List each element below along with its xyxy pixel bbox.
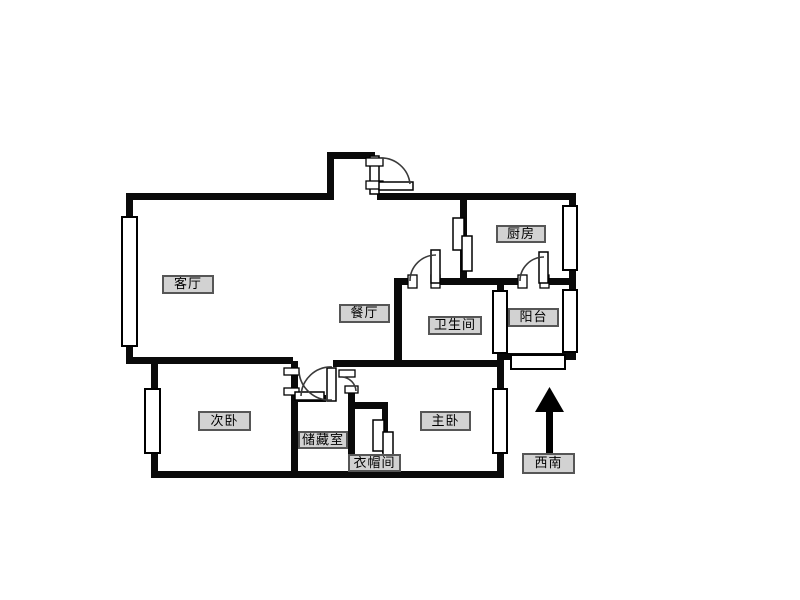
room-label-living-room: 客厅 xyxy=(162,275,214,294)
window-masterbedroom-right xyxy=(493,389,507,453)
entrance-door-hinge-top xyxy=(366,158,383,166)
wall-bottom-exterior xyxy=(151,471,504,478)
compass-direction-label: 西南 xyxy=(522,453,575,474)
kitchen-door-jamb-left xyxy=(518,275,527,288)
room-label-storage-room: 储藏室 xyxy=(298,431,348,449)
compass-arrow-head xyxy=(535,387,564,412)
room-label-cloakroom: 衣帽间 xyxy=(348,454,401,472)
window-balcony-bottom xyxy=(511,355,565,369)
wall-storage-left xyxy=(291,361,298,473)
window-balcony-left xyxy=(493,291,507,353)
window-secondbedroom-left xyxy=(145,389,160,453)
room-label-kitchen: 厨房 xyxy=(496,225,546,243)
corridor-hinge-right-top xyxy=(339,370,355,377)
room-label-balcony: 阳台 xyxy=(508,308,559,327)
room-label-dining-room: 餐厅 xyxy=(339,304,390,323)
bathroom-door-jamb-left xyxy=(408,275,417,288)
wall-entry-nook-vertical xyxy=(327,152,334,200)
floorplan-page: 客厅 餐厅 厨房 卫生间 阳台 次卧 储藏室 衣帽间 主卧 西南 xyxy=(0,0,800,600)
room-label-bathroom: 卫生间 xyxy=(428,316,482,335)
compass-arrow-icon xyxy=(535,387,564,457)
wall-bathroom-left xyxy=(394,278,402,365)
compass-arrow-shaft xyxy=(546,406,553,457)
room-label-second-bedroom: 次卧 xyxy=(198,411,251,431)
entrance-door-leaf xyxy=(379,182,413,190)
floorplan-drawing xyxy=(0,0,800,600)
storage-door-leaf-vertical xyxy=(327,368,336,401)
wall-bathroom-top-b xyxy=(437,278,521,285)
wall-top-left xyxy=(126,193,333,200)
kitchen-flue-panel-b xyxy=(462,236,472,271)
room-label-master-bedroom: 主卧 xyxy=(420,411,471,431)
corridor-hinge-left-top xyxy=(284,368,299,375)
window-kitchen-right xyxy=(563,206,577,270)
entrance-door xyxy=(366,156,413,194)
window-livingroom-left xyxy=(122,217,137,346)
entrance-door-swing-arc xyxy=(380,158,410,184)
kitchen-balcony-door xyxy=(518,252,549,288)
wall-masterbedroom-top xyxy=(333,360,497,367)
wall-top-right xyxy=(377,193,576,200)
window-balcony-right xyxy=(563,290,577,352)
bathroom-door xyxy=(408,250,440,288)
